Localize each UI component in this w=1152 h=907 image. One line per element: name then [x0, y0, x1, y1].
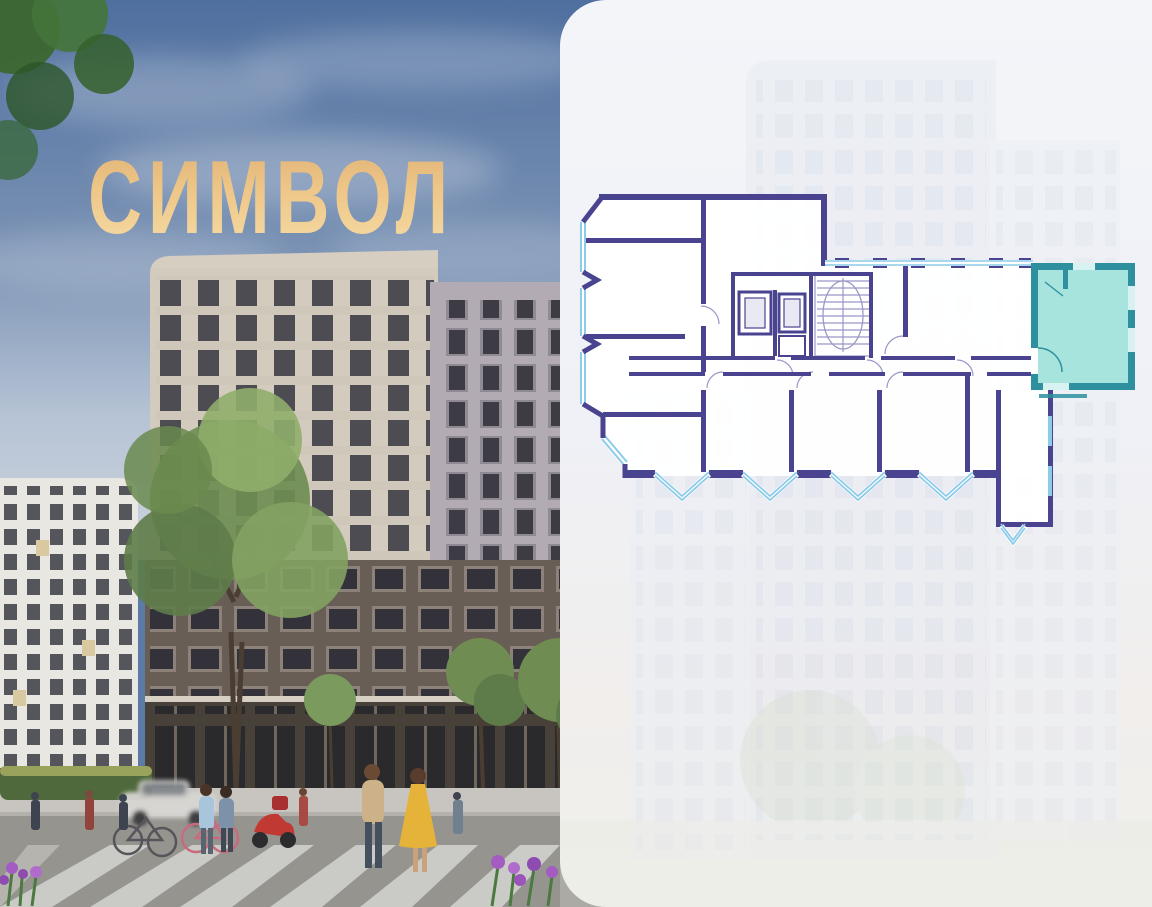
info-block-korpus: (3А) 33 КОРПУС — [1146, 630, 1152, 759]
left-tower — [0, 478, 138, 812]
details-panel: (3А) 33 КОРПУС 2 СЕКЦИЯ 25 ЭТАЖ — [560, 0, 1152, 907]
floorplan-highlighted-unit[interactable] — [1031, 263, 1135, 398]
floor-plan — [573, 186, 1140, 570]
project-logo: СИМВОЛ — [88, 148, 454, 258]
listing-card: СИМВОЛ — [0, 0, 1152, 907]
